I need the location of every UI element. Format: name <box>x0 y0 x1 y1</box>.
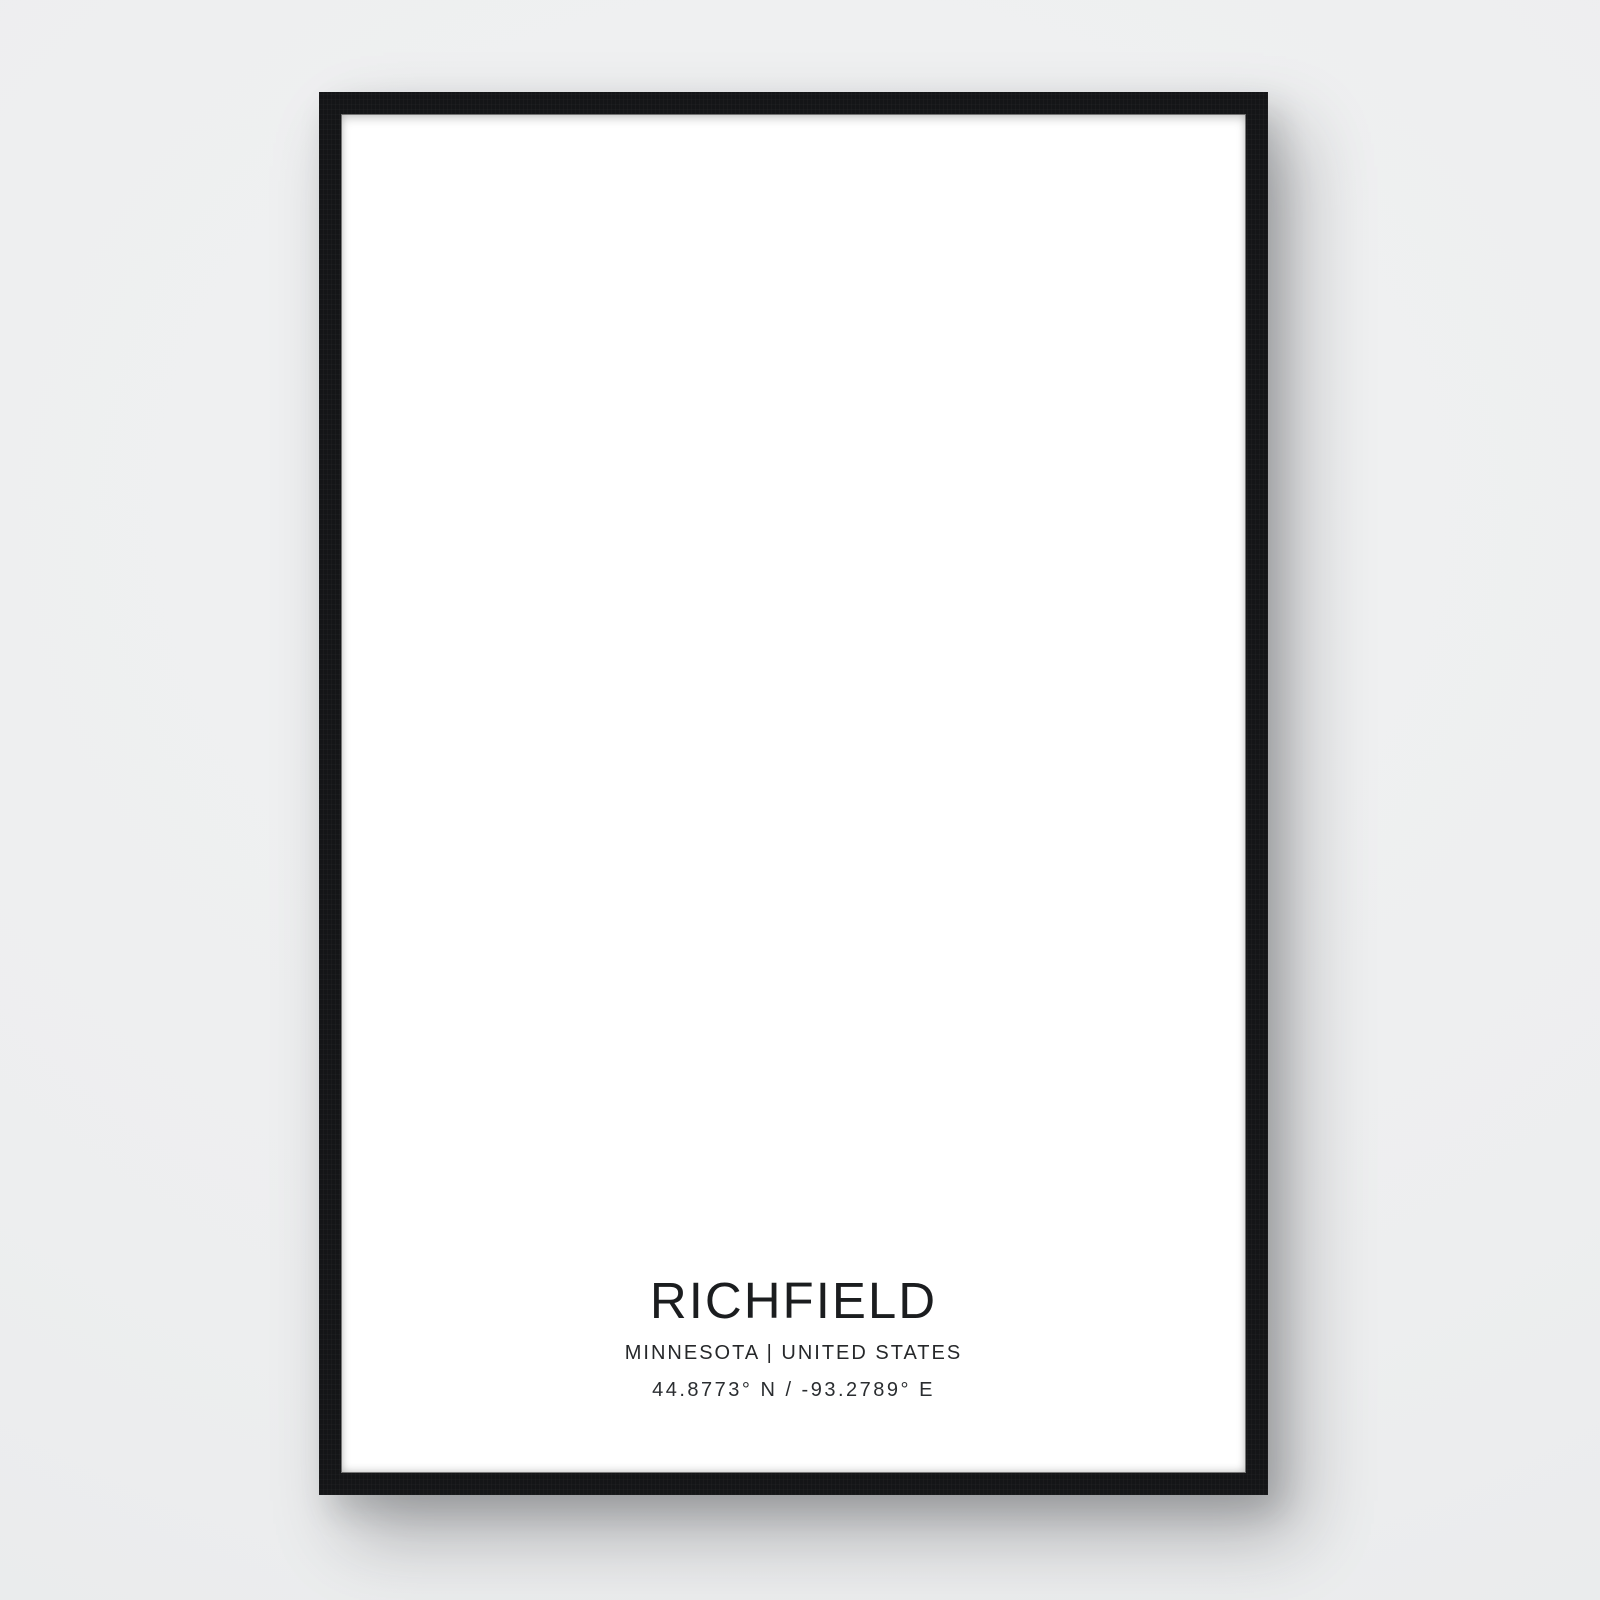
region-subtitle: MINNESOTA | UNITED STATES <box>341 1342 1246 1365</box>
city-title: RICHFIELD <box>341 1272 1246 1329</box>
poster-title-block: RICHFIELD MINNESOTA | UNITED STATES 44.8… <box>341 1272 1246 1402</box>
city-map <box>341 114 1246 1473</box>
poster-frame: RICHFIELD MINNESOTA | UNITED STATES 44.8… <box>319 92 1268 1495</box>
product-photo-backdrop: RICHFIELD MINNESOTA | UNITED STATES 44.8… <box>0 0 1600 1600</box>
map-poster: RICHFIELD MINNESOTA | UNITED STATES 44.8… <box>341 114 1246 1473</box>
coordinates-line: 44.8773° N / -93.2789° E <box>341 1379 1246 1402</box>
